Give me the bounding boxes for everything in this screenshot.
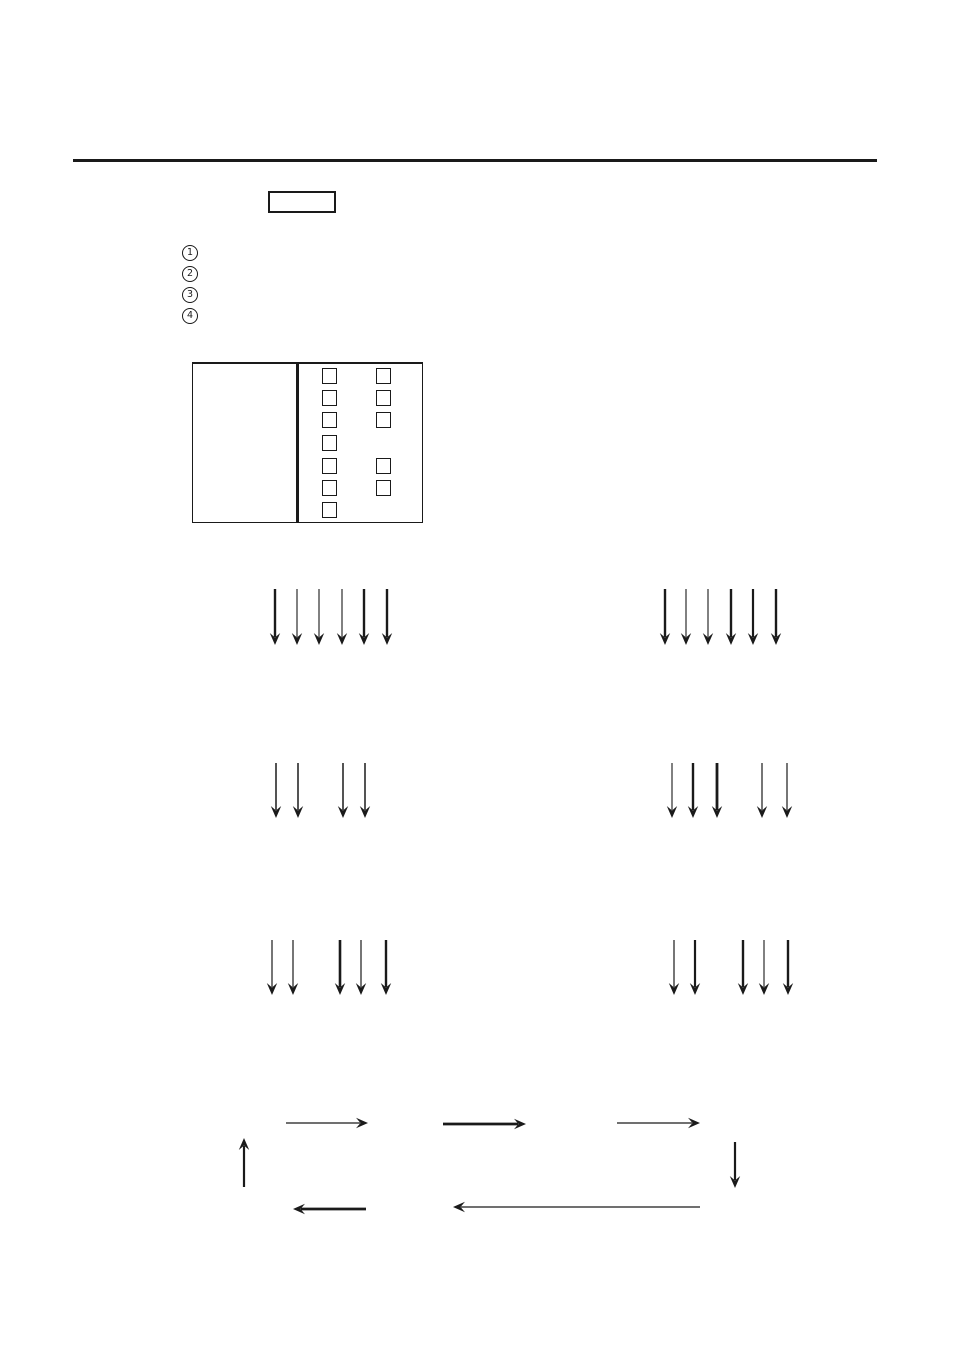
arrow-layer <box>0 0 954 1348</box>
down-arrow-row1-right <box>660 589 670 645</box>
connector-square <box>322 502 337 518</box>
connector-square <box>376 458 391 474</box>
down-arrow-row2-left <box>338 763 348 818</box>
cycle-up-arrow <box>239 1138 249 1187</box>
connector-square <box>322 435 337 451</box>
connector-square <box>322 412 337 428</box>
down-arrow-row3-right <box>738 940 748 995</box>
down-arrow-row3-left <box>335 940 345 995</box>
down-arrow-row2-left <box>293 763 303 818</box>
connector-square <box>376 412 391 428</box>
connector-square <box>376 480 391 496</box>
down-arrow-row2-right <box>782 763 792 818</box>
down-arrow-row1-right <box>726 589 736 645</box>
down-arrow-row1-left <box>314 589 324 645</box>
connector-square <box>322 368 337 384</box>
down-arrow-row2-right <box>688 763 698 818</box>
down-arrow-row1-right <box>748 589 758 645</box>
down-arrow-row3-right <box>690 940 700 995</box>
cycle-right-arrow-3 <box>617 1118 700 1128</box>
cycle-right-arrow-1 <box>286 1118 368 1128</box>
down-arrow-row3-right <box>783 940 793 995</box>
down-arrow-row3-left <box>288 940 298 995</box>
connector-square <box>376 368 391 384</box>
down-arrow-row1-left <box>359 589 369 645</box>
down-arrow-row2-right <box>757 763 767 818</box>
down-arrow-row3-right <box>759 940 769 995</box>
down-arrow-row2-left <box>360 763 370 818</box>
document-page: 1 2 3 4 <box>0 0 954 1348</box>
down-arrow-row3-left <box>356 940 366 995</box>
down-arrow-row3-right <box>669 940 679 995</box>
cycle-left-arrow-short <box>293 1204 366 1214</box>
down-arrow-row3-left <box>381 940 391 995</box>
down-arrow-row2-right <box>712 763 722 818</box>
connector-square <box>322 458 337 474</box>
down-arrow-row1-right <box>681 589 691 645</box>
connector-square <box>322 480 337 496</box>
connector-square <box>322 390 337 406</box>
down-arrow-row1-right <box>771 589 781 645</box>
down-arrow-row3-left <box>267 940 277 995</box>
down-arrow-row1-left <box>382 589 392 645</box>
cycle-left-arrow-long <box>453 1202 700 1212</box>
down-arrow-row1-left <box>292 589 302 645</box>
down-arrow-row1-right <box>703 589 713 645</box>
cycle-down-arrow <box>730 1142 740 1188</box>
down-arrow-row1-left <box>337 589 347 645</box>
down-arrow-row1-left <box>270 589 280 645</box>
down-arrow-row2-left <box>271 763 281 818</box>
connector-square <box>376 390 391 406</box>
down-arrow-row2-right <box>667 763 677 818</box>
cycle-right-arrow-2 <box>443 1119 526 1129</box>
